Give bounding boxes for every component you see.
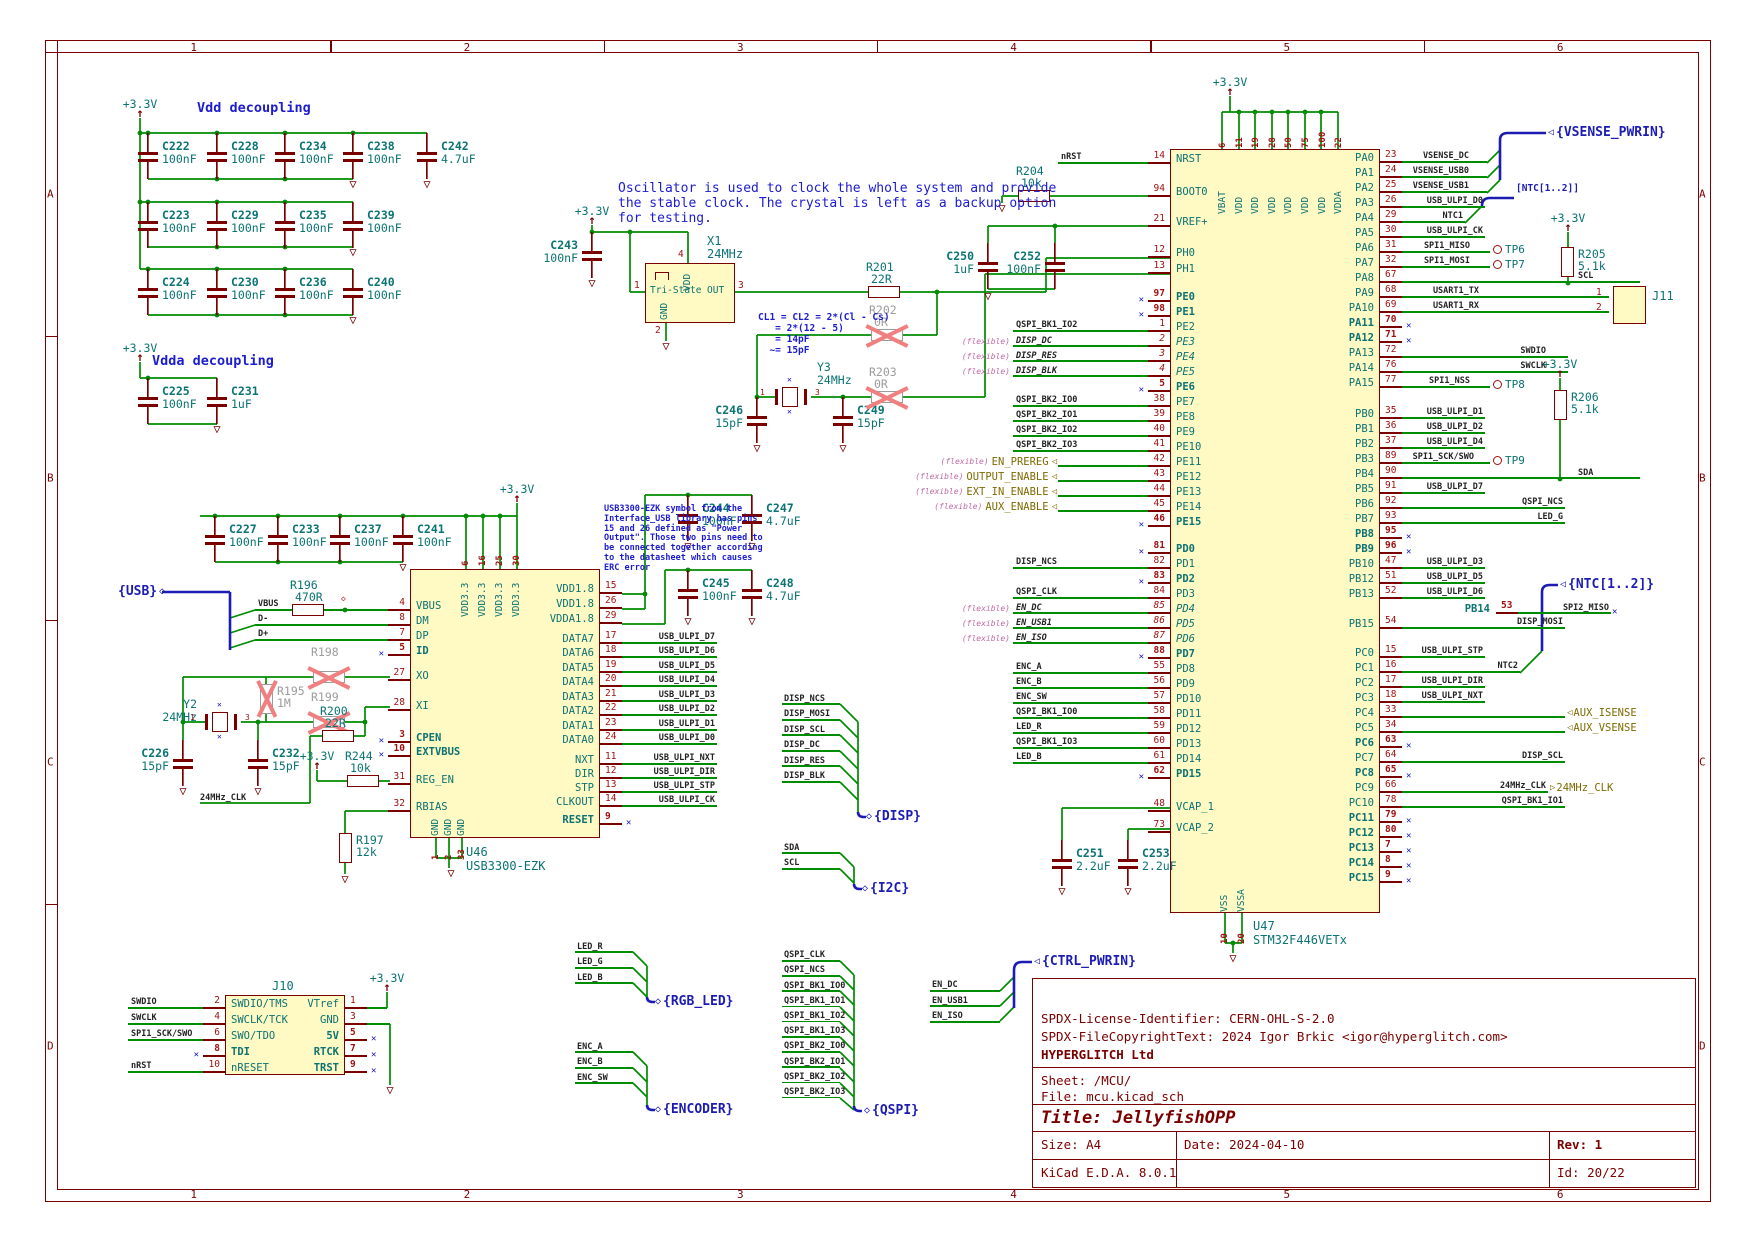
resistor-value: 0R — [874, 377, 888, 391]
net-label[interactable]: SDA — [1578, 468, 1593, 478]
gnd-symbol[interactable] — [349, 246, 356, 258]
no-connect-icon: ✕ — [1139, 385, 1144, 395]
net-label[interactable]: nRST — [131, 1053, 151, 1072]
pin-row[interactable]: nRST 10 nRESET — [125, 1061, 225, 1077]
signal-row[interactable]: SCL — [782, 858, 882, 874]
capacitor[interactable]: C250 1uF — [978, 243, 998, 289]
j11-refdes: J11 — [1652, 289, 1674, 303]
pin-name: PC11 — [1318, 812, 1374, 824]
gnd-symbol[interactable] — [447, 867, 454, 879]
net-label[interactable]: LED_G — [1537, 504, 1563, 523]
pin-name: EXTVBUS — [416, 746, 460, 758]
wire — [1402, 731, 1565, 733]
signal-row[interactable]: DISP_MOSI — [782, 709, 882, 725]
pin-row[interactable]: PC11 79 ✕ — [1380, 812, 1660, 827]
pin-row[interactable]: RTCK 7 ✕ — [345, 1045, 465, 1061]
net-label[interactable]: nRST — [1061, 144, 1081, 163]
signal-row[interactable]: LED_B — [575, 972, 675, 988]
power-symbol[interactable]: +3.3V ↑ — [1538, 213, 1598, 232]
pin-row[interactable]: PA6 31 SPI1_MISO TP6 — [1380, 242, 1660, 257]
crystal[interactable]: Y2 24MHz ✕ ✕ 1 3 — [199, 711, 243, 733]
capacitor[interactable]: C226 15pF — [173, 740, 193, 786]
pin-row[interactable]: 48 VCAP_1 — [900, 795, 1170, 816]
pin-row[interactable]: (flexible) DISP_RES 3 PE4 — [900, 351, 1170, 366]
hier-pin-label[interactable]: ◁AUX_VSENSE — [1567, 722, 1637, 734]
pin-name: VSS — [1219, 866, 1230, 912]
pin-stub — [1380, 522, 1402, 524]
net-label[interactable]: USB_ULPI_D7 — [1427, 474, 1483, 493]
signal-row[interactable]: QSPI_BK2_IO0 — [782, 1041, 882, 1056]
pin-stub — [1380, 236, 1402, 238]
pin-row[interactable]: PA14 76 SWCLK — [1380, 362, 1660, 377]
hier-pin-label[interactable]: ◁AUX_ISENSE — [1567, 707, 1637, 719]
pin-name: STP — [538, 782, 594, 794]
pin-row[interactable]: QSPI_CLK 84 PD3 — [900, 588, 1170, 603]
pin-name: VCAP_2 — [1176, 822, 1214, 834]
capacitor[interactable]: C230 100nF — [207, 269, 227, 315]
pin-row[interactable]: ✕ 97 PE0 — [900, 291, 1170, 306]
wire — [1013, 375, 1148, 377]
signal-row[interactable]: DISP_BLK — [782, 771, 882, 787]
net-label[interactable]: USB_ULPI_CK — [659, 787, 715, 806]
net-label[interactable]: USB_ULPI_NXT — [1422, 683, 1483, 702]
signal-row[interactable]: QSPI_BK1_IO0 — [782, 980, 882, 995]
pin-stub — [1380, 716, 1402, 718]
gnd-symbol[interactable] — [341, 873, 348, 885]
pin-stub — [388, 624, 410, 626]
pin-stub — [1380, 567, 1402, 569]
pin-row[interactable]: (flexible) EN_DC 85 PD4 — [900, 603, 1170, 618]
capacitor[interactable]: C239 100nF — [343, 202, 363, 248]
signal-row[interactable]: LED_R — [575, 941, 675, 957]
capacitor[interactable]: C246 15pF — [747, 397, 767, 443]
pin-number: 7 — [399, 627, 405, 638]
net-label: EN_ISO — [932, 1011, 963, 1021]
capacitor[interactable]: C223 100nF — [138, 202, 158, 248]
net-label[interactable]: QSPI_BK1_IO1 — [1502, 788, 1563, 807]
capacitor[interactable]: C229 100nF — [207, 202, 227, 248]
capacitor[interactable]: C235 100nF — [275, 202, 295, 248]
pin-row[interactable]: (flexible)AUX_ENABLE◁ 45 PE14 — [900, 501, 1170, 516]
pin-number: 100 — [1318, 112, 1328, 148]
pin-row[interactable]: (flexible)EXT_IN_ENABLE◁ 44 PE13 — [900, 486, 1170, 501]
capacitor-value: 100nF — [417, 535, 452, 549]
frame-row-label: A — [1699, 188, 1706, 201]
pin-name: VDD — [1317, 154, 1328, 214]
capacitor[interactable]: C240 100nF — [343, 269, 363, 315]
signal-row[interactable]: QSPI_BK1_IO1 — [782, 996, 882, 1011]
hierarchical-label[interactable]: ◇ {ENCODER} — [655, 1102, 733, 1117]
gnd-symbol[interactable] — [1058, 885, 1065, 897]
pin-row[interactable]: PC3 18 USB_ULPI_NXT — [1380, 692, 1660, 707]
resistor-body — [260, 684, 273, 714]
frame-col-label: 4 — [1010, 41, 1017, 54]
net-label[interactable]: D+ — [258, 621, 268, 640]
net-label[interactable]: NTC2 — [1498, 653, 1518, 672]
capacitor[interactable]: C236 100nF — [275, 269, 295, 315]
capacitor[interactable]: C243 100nF — [582, 232, 602, 278]
pin-row[interactable]: CLKOUT 14 USB_ULPI_CK — [600, 797, 800, 811]
net-label[interactable]: 24MHz_CLK — [200, 793, 246, 803]
wire — [782, 1036, 840, 1038]
pin-row[interactable]: PC10 78 QSPI_BK1_IO1 — [1380, 797, 1660, 812]
pin-row[interactable]: LED_B 61 PD14 — [900, 753, 1170, 768]
capacitor-refdes: C236 — [299, 275, 327, 289]
wire — [1013, 330, 1148, 332]
capacitor[interactable]: C232 15pF — [248, 740, 268, 786]
power-symbol[interactable]: +3.3V ↑ — [357, 973, 417, 992]
signal-row[interactable]: DISP_NCS — [782, 693, 882, 709]
capacitor[interactable]: C248 4.7uF — [742, 570, 762, 616]
usbphy-part-number: USB3300-EZK — [466, 859, 545, 873]
pin-name: PA7 — [1318, 257, 1374, 269]
net-label[interactable]: DISP_SCL — [1522, 743, 1563, 762]
gnd-symbol[interactable] — [662, 340, 669, 352]
test-point[interactable]: TP6 — [1493, 243, 1525, 256]
pin-name: PA14 — [1318, 362, 1374, 374]
capacitor[interactable]: C253 2.2uF — [1118, 840, 1138, 886]
resistor-body — [1561, 247, 1574, 277]
pin-row[interactable]: PB6 92 QSPI_NCS — [1380, 498, 1660, 513]
net-label[interactable]: SPI1_NSS — [1429, 368, 1470, 387]
pin-stub — [1380, 656, 1402, 658]
pin-row[interactable]: D+ 7 DP — [150, 630, 410, 645]
pin-row[interactable]: PC12 80 ✕ — [1380, 827, 1660, 842]
pin-number: 8 — [214, 1043, 220, 1054]
net-label[interactable]: QSPI_BK1_IO2 — [1016, 312, 1077, 331]
pin-stub — [1380, 221, 1402, 223]
signal-row[interactable]: ENC_B — [575, 1057, 675, 1073]
pin-row[interactable]: QSPI_BK2_IO3 41 PE10 — [900, 441, 1170, 456]
pin-stub — [1380, 836, 1402, 838]
signal-row[interactable]: SDA — [782, 842, 882, 858]
capacitor[interactable]: C234 100nF — [275, 133, 295, 179]
signal-row[interactable]: DISP_SCL — [782, 724, 882, 740]
frame-row-label: B — [1699, 472, 1706, 485]
capacitor[interactable]: C231 1uF — [207, 378, 227, 424]
pin-row[interactable]: PA15 77 SPI1_NSS TP8 — [1380, 377, 1660, 392]
power-symbol[interactable]: +3.3V ↑ — [110, 99, 170, 118]
pin-row[interactable]: PA3 26 USB_ULPI_D0 — [1380, 197, 1660, 212]
pin-row[interactable]: PA5 30 USB_ULPI_CK — [1380, 227, 1660, 242]
pin-row[interactable]: 27 XO — [150, 670, 410, 685]
capacitor-refdes: C231 — [231, 384, 259, 398]
capacitor[interactable]: C233 100nF — [268, 516, 288, 562]
pin-row[interactable]: 73 VCAP_2 — [900, 816, 1170, 837]
pin-row[interactable]: (flexible) DISP_DC 2 PE3 — [900, 336, 1170, 351]
capacitor-refdes: C245 — [702, 576, 730, 590]
net-label: DISP_SCL — [784, 725, 825, 735]
capacitor[interactable]: C228 100nF — [207, 133, 227, 179]
test-point[interactable]: TP8 — [1493, 378, 1525, 391]
capacitor[interactable]: C249 15pF — [833, 397, 853, 443]
wire — [782, 734, 840, 736]
frame-row-label: A — [47, 188, 54, 201]
pin-number: 57 — [1154, 690, 1165, 701]
signal-row[interactable]: QSPI_BK2_IO3 — [782, 1087, 882, 1102]
capacitor[interactable]: C242 4.7uF — [417, 133, 437, 179]
pin-row[interactable]: PB1 36 USB_ULPI_D2 — [1380, 423, 1660, 438]
gnd-symbol[interactable] — [179, 785, 186, 797]
pin-row[interactable]: GND 3 — [345, 1013, 465, 1029]
crystal[interactable]: Y3 24MHz ✕ ✕ 1 3 — [769, 386, 813, 408]
signal-row[interactable]: ENC_SW — [575, 1072, 675, 1088]
pin-row[interactable]: RESET 9 ✕ — [600, 815, 800, 829]
pin-row[interactable]: PC14 8 ✕ — [1380, 857, 1660, 872]
pin-row[interactable]: SPI1_SCK/SWO 6 SWO/TDO — [125, 1029, 225, 1045]
pin-number: 91 — [1385, 480, 1396, 491]
capacitor[interactable]: C251 2.2uF — [1052, 840, 1072, 886]
pin-number: 81 — [1154, 540, 1165, 551]
pin-row[interactable]: PB5 91 USB_ULPI_D7 — [1380, 483, 1660, 498]
schematic-title: Title: JellyfishOPP — [1041, 1108, 1235, 1128]
pin-number: 68 — [1385, 284, 1396, 295]
pin-row[interactable]: PB10 47 USB_ULPI_D3 — [1380, 558, 1660, 573]
osc-pin-enable: Tri-State — [650, 285, 701, 296]
pin-row[interactable]: 5V 5 ✕ — [345, 1029, 465, 1045]
pin-row[interactable]: PB0 35 USB_ULPI_D1 — [1380, 408, 1660, 423]
pin-name: VDD — [1234, 154, 1245, 214]
capacitor[interactable]: C238 100nF — [343, 133, 363, 179]
gnd-symbol[interactable] — [984, 290, 991, 302]
load-cap-formula-note: CL1 = CL2 = 2*(Cl - Cs) = 2*(12 - 5) = 1… — [758, 313, 890, 357]
net-label[interactable]: SPI1_SCK/SWO — [1413, 444, 1474, 463]
pin-stub — [388, 709, 410, 711]
pin-row[interactable]: VTref 1 — [345, 997, 465, 1013]
pin-row[interactable]: (flexible)OUTPUT_ENABLE◁ 43 PE12 — [900, 471, 1170, 486]
gnd-symbol[interactable] — [1124, 885, 1131, 897]
gnd-symbol[interactable] — [213, 423, 220, 435]
pin-name: VDD3.3 — [460, 573, 471, 617]
gnd-symbol[interactable] — [423, 178, 430, 190]
net-label[interactable]: DISP_NCS — [1016, 549, 1057, 568]
capacitor[interactable]: C222 100nF — [138, 133, 158, 179]
signal-row[interactable]: EN_DC — [930, 980, 1030, 996]
capacitor[interactable]: C227 100nF — [205, 516, 225, 562]
power-symbol[interactable]: +3.3V ↑ — [1200, 77, 1260, 96]
j10-refdes: J10 — [272, 979, 294, 993]
gnd-symbol[interactable] — [349, 178, 356, 190]
pin-stub — [1148, 465, 1170, 467]
pin-stub — [1148, 450, 1170, 452]
signal-row[interactable]: QSPI_NCS — [782, 965, 882, 980]
wire — [575, 1082, 633, 1084]
pin-row[interactable]: PB9 96 ✕ — [1380, 543, 1660, 558]
dnc-flag: ◇ — [341, 594, 346, 603]
signal-row[interactable]: LED_G — [575, 957, 675, 973]
pin-row[interactable]: ✕ 62 PD15 — [900, 768, 1170, 783]
net-label[interactable]: QSPI_BK2_IO3 — [1016, 432, 1077, 451]
pin-row[interactable]: PC15 9 ✕ — [1380, 872, 1660, 887]
gnd-symbol[interactable] — [588, 277, 595, 289]
gnd-symbol[interactable] — [748, 615, 755, 627]
pin-row[interactable]: PC13 7 ✕ — [1380, 842, 1660, 857]
capacitor-value: 100nF — [543, 251, 578, 265]
pin-stub — [388, 654, 410, 656]
capacitor[interactable]: C225 100nF — [138, 378, 158, 424]
pin-number: 32 — [394, 798, 405, 809]
pin-number: 52 — [1385, 585, 1396, 596]
capacitor-value: 4.7uF — [766, 514, 801, 528]
gnd-symbol[interactable] — [1229, 952, 1236, 964]
pin-stub — [1148, 687, 1170, 689]
hier-pin-label[interactable]: (flexible)AUX_ENABLE◁ — [934, 501, 1057, 513]
net-label[interactable]: USB_ULPI_STP — [1422, 638, 1483, 657]
pin-stub — [345, 1071, 367, 1073]
pin-row[interactable]: QSPI_BK1_IO2 1 PE2 — [900, 321, 1170, 336]
power-symbol[interactable]: +3.3V ↑ — [1530, 359, 1590, 378]
pin-row[interactable]: PA8 67 — [1380, 272, 1660, 287]
resistor-body — [322, 730, 354, 742]
pin-row[interactable]: TRST 9 ✕ — [345, 1061, 465, 1077]
test-point[interactable]: TP7 — [1493, 258, 1525, 271]
pin-number: 15 — [605, 580, 616, 591]
frame-tick — [604, 40, 605, 52]
capacitor[interactable]: C252 100nF — [1045, 243, 1065, 289]
pin-row[interactable]: (flexible) DISP_BLK 4 PE5 — [900, 366, 1170, 381]
signal-row[interactable]: DISP_DC — [782, 740, 882, 756]
pin-row[interactable]: (flexible)EN_PREREG◁ 42 PE11 — [900, 456, 1170, 471]
gnd-symbol[interactable] — [753, 442, 760, 454]
hierarchical-label[interactable]: ◁ {VSENSE_PWRIN} — [1548, 125, 1666, 140]
pin-row[interactable]: (flexible) EN_USB1 86 PD5 — [900, 618, 1170, 633]
gnd-symbol[interactable] — [349, 314, 356, 326]
test-point[interactable]: TP9 — [1493, 454, 1525, 467]
pin-stub — [600, 805, 622, 807]
pin-number: 13 — [605, 779, 616, 790]
pin-row[interactable]: DISP_NCS 82 PD1 — [900, 558, 1170, 573]
pin-row[interactable]: PB4 90 — [1380, 468, 1660, 483]
pin-number: 6 — [214, 1027, 220, 1038]
pin-row[interactable]: PC5 34 ◁AUX_VSENSE — [1380, 722, 1660, 737]
hier-pin-label[interactable]: (flexible)EXT_IN_ENABLE◁ — [915, 486, 1057, 498]
pin-row[interactable]: PB3 89 SPI1_SCK/SWO TP9 — [1380, 453, 1660, 468]
net-label[interactable]: SCL — [1578, 271, 1593, 281]
pin-row[interactable]: (flexible) EN_ISO 87 PD6 — [900, 633, 1170, 648]
net-label: EN_DC — [932, 980, 958, 990]
net-label[interactable]: LED_B — [1016, 744, 1042, 763]
pin-row[interactable]: VBUS 4 VBUS — [150, 600, 410, 615]
hier-pin-label[interactable]: (flexible)EN_PREREG◁ — [941, 456, 1058, 468]
pin-stub — [1148, 435, 1170, 437]
pin-row[interactable]: PA4 29 NTC1 — [1380, 212, 1660, 227]
net-label[interactable]: USART1_RX — [1433, 293, 1479, 312]
power-arrow-icon: ↑ — [487, 494, 547, 503]
pin-row[interactable]: PA11 70 ✕ — [1380, 317, 1660, 332]
signal-row[interactable]: QSPI_BK1_IO3 — [782, 1026, 882, 1041]
resistor-value: 12k — [356, 845, 377, 859]
capacitor[interactable]: C241 100nF — [393, 516, 413, 562]
pin-stub — [1380, 176, 1402, 178]
hierarchical-label[interactable]: ◇ {RGB_LED} — [655, 994, 733, 1009]
net-label[interactable]: SPI2_MISO — [1563, 603, 1609, 613]
wire — [930, 990, 1000, 992]
signal-row[interactable]: QSPI_BK2_IO2 — [782, 1072, 882, 1087]
signal-row[interactable]: QSPI_CLK — [782, 950, 882, 965]
net-label[interactable]: SPI1_MOSI — [1424, 248, 1470, 267]
hierarchical-label[interactable]: ◇ {I2C} — [862, 881, 909, 896]
frame-col-label: 2 — [464, 41, 471, 54]
capacitor[interactable]: C245 100nF — [678, 570, 698, 616]
signal-row[interactable]: QSPI_BK1_IO2 — [782, 1011, 882, 1026]
pin-number: 48 — [1154, 798, 1165, 809]
pin-row[interactable]: ✕ 46 PE15 — [900, 516, 1170, 531]
frame-tick — [1424, 40, 1425, 52]
pin-row[interactable]: ✕ 5 ID — [150, 645, 410, 660]
pin-row[interactable]: PC7 64 DISP_SCL — [1380, 752, 1660, 767]
signal-row[interactable]: DISP_RES — [782, 755, 882, 771]
pin-number: 30 — [512, 542, 522, 566]
gnd-symbol[interactable] — [386, 1084, 393, 1096]
hierarchical-label[interactable]: ◇ {QSPI} — [864, 1103, 919, 1118]
capacitor-refdes: C224 — [162, 275, 190, 289]
gnd-symbol[interactable] — [254, 785, 261, 797]
hierarchical-label[interactable]: {USB} ◇ — [118, 584, 165, 599]
gnd-symbol[interactable] — [399, 561, 406, 573]
net-label[interactable]: USB_ULPI_D6 — [1427, 579, 1483, 598]
pin-row[interactable]: D- 8 DM — [150, 615, 410, 630]
hierarchical-label[interactable]: [NTC[1..2]] — [1516, 183, 1579, 194]
power-symbol[interactable]: +3.3V ↑ — [562, 206, 622, 225]
signal-row[interactable]: QSPI_BK2_IO1 — [782, 1056, 882, 1071]
osc-frequency: 24MHz — [707, 247, 743, 261]
pin-number: 20 — [605, 673, 616, 684]
net-label[interactable]: USB_ULPI_D0 — [659, 725, 715, 744]
wire — [1013, 450, 1148, 452]
power-symbol[interactable]: +3.3V ↑ — [287, 751, 347, 770]
hier-pin-label[interactable]: (flexible)OUTPUT_ENABLE◁ — [915, 471, 1057, 483]
pin-name: DATA4 — [538, 676, 594, 688]
pin-row[interactable]: PA7 32 SPI1_MOSI TP7 — [1380, 257, 1660, 272]
pin-number: 97 — [1154, 288, 1165, 299]
power-symbol[interactable]: +3.3V ↑ — [487, 484, 547, 503]
pin-number: 20 — [1237, 918, 1247, 944]
hierarchical-label[interactable]: ◁ {NTC[1..2]} — [1560, 577, 1654, 592]
capacitor-refdes: C251 — [1076, 846, 1104, 860]
pin-row[interactable]: PC4 33 ◁AUX_ISENSE — [1380, 707, 1660, 722]
pin-name: PD12 — [1176, 723, 1201, 735]
pin-stub — [1380, 311, 1402, 313]
signal-row[interactable]: ENC_A — [575, 1041, 675, 1057]
net-label[interactable]: QSPI_CLK — [1016, 579, 1057, 598]
pin-row[interactable]: PC6 63 ✕ — [1380, 737, 1660, 752]
wire — [782, 750, 840, 752]
pin-row[interactable]: PA9 68 USART1_TX — [1380, 287, 1660, 302]
pin-row[interactable]: 32 RBIAS — [150, 801, 410, 816]
pin-row[interactable]: PA10 69 USART1_RX — [1380, 302, 1660, 317]
date: Date: 2024-04-10 — [1184, 1137, 1304, 1152]
testpoint-circle-icon — [1493, 456, 1502, 465]
pin-row[interactable]: PB7 93 LED_G — [1380, 513, 1660, 528]
pin-number: 44 — [1154, 483, 1165, 494]
capacitor[interactable]: C224 100nF — [138, 269, 158, 315]
signal-row[interactable]: EN_ISO — [930, 1011, 1030, 1027]
hierarchical-label[interactable]: ◁ {CTRL_PWRIN} — [1034, 954, 1136, 969]
net-label[interactable]: SPI1_SCK/SWO — [131, 1021, 192, 1040]
pin-row[interactable]: PB15 54 DISP_MOSI — [1380, 618, 1660, 633]
pin-number: 19 — [605, 659, 616, 670]
net-label[interactable]: DISP_MOSI — [1517, 609, 1563, 628]
pin-stub — [1380, 866, 1402, 868]
signal-row[interactable]: EN_USB1 — [930, 995, 1030, 1011]
no-connect-icon: ✕ — [371, 1066, 376, 1076]
pin-row[interactable]: PC0 15 USB_ULPI_STP — [1380, 647, 1660, 662]
capacitor[interactable]: C237 100nF — [330, 516, 350, 562]
pin-row[interactable]: PB8 95 ✕ — [1380, 528, 1660, 543]
hierarchical-label[interactable]: ◇ {DISP} — [866, 809, 921, 824]
gnd-symbol[interactable] — [839, 442, 846, 454]
gnd-symbol[interactable] — [684, 615, 691, 627]
